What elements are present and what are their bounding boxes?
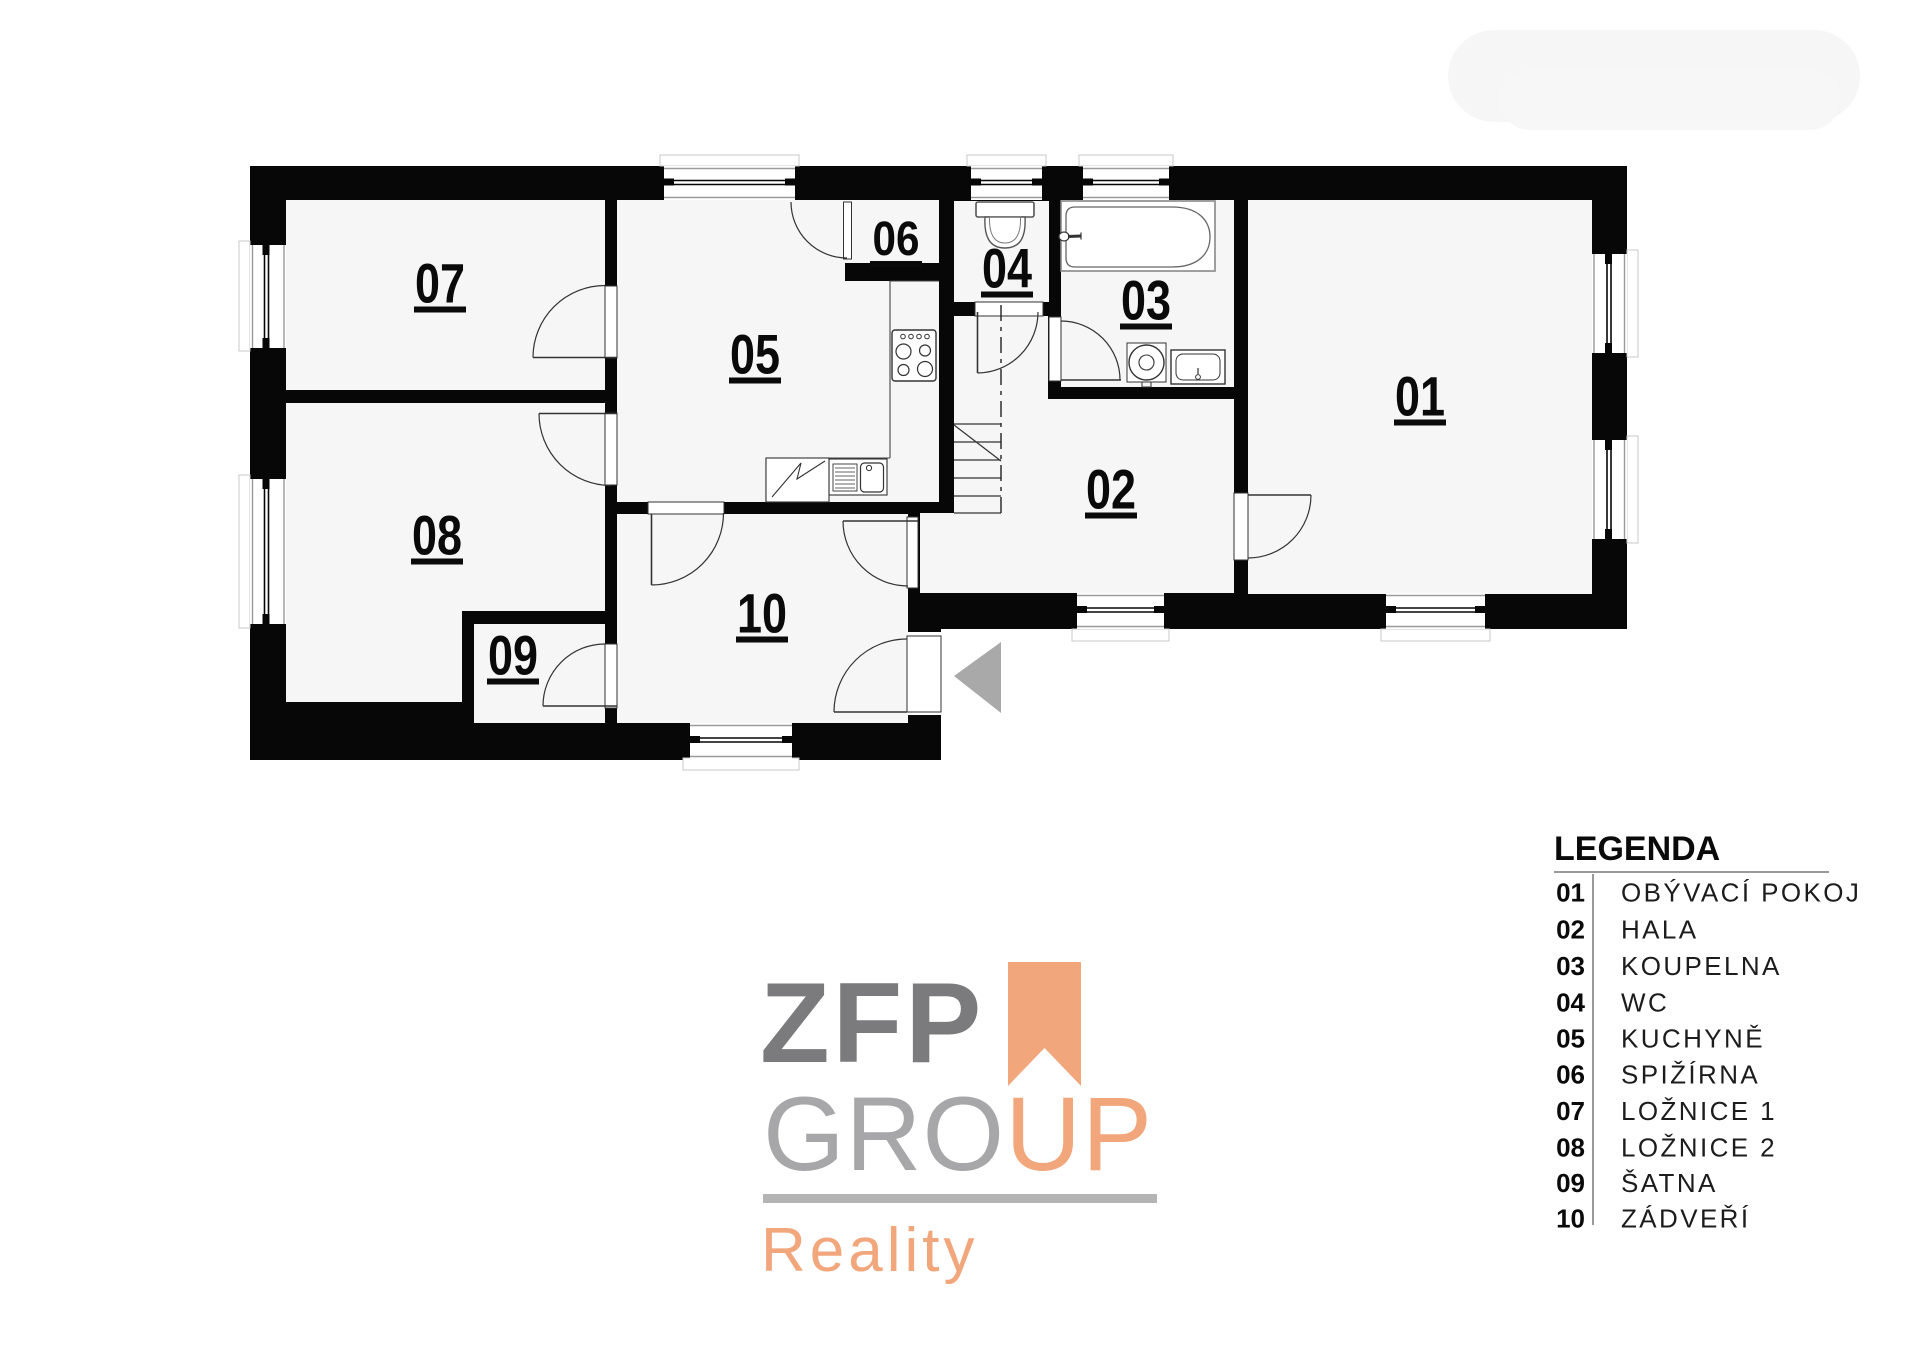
svg-text:07: 07 bbox=[415, 252, 465, 315]
svg-text:OBÝVACÍ POKOJ: OBÝVACÍ POKOJ bbox=[1621, 878, 1861, 908]
svg-text:KOUPELNA: KOUPELNA bbox=[1621, 951, 1782, 981]
svg-text:05: 05 bbox=[1556, 1024, 1585, 1054]
svg-text:LOŽNICE 2: LOŽNICE 2 bbox=[1621, 1133, 1777, 1163]
svg-text:Reality: Reality bbox=[761, 1216, 979, 1285]
svg-text:ZÁDVEŘÍ: ZÁDVEŘÍ bbox=[1621, 1204, 1750, 1234]
svg-text:06: 06 bbox=[1556, 1060, 1585, 1090]
svg-text:04: 04 bbox=[982, 237, 1032, 300]
svg-text:09: 09 bbox=[488, 624, 538, 687]
svg-text:02: 02 bbox=[1556, 915, 1585, 945]
svg-text:WC: WC bbox=[1621, 988, 1669, 1018]
svg-text:ZFP: ZFP bbox=[760, 960, 984, 1087]
svg-text:LEGENDA: LEGENDA bbox=[1554, 830, 1720, 868]
svg-text:LOŽNICE 1: LOŽNICE 1 bbox=[1621, 1096, 1777, 1126]
svg-text:10: 10 bbox=[1556, 1204, 1585, 1234]
svg-text:ŠATNA: ŠATNA bbox=[1621, 1168, 1718, 1198]
svg-text:GROUP: GROUP bbox=[763, 1076, 1153, 1193]
svg-text:SPIŽÍRNA: SPIŽÍRNA bbox=[1621, 1060, 1760, 1090]
svg-text:02: 02 bbox=[1086, 458, 1136, 521]
svg-text:05: 05 bbox=[730, 323, 780, 386]
svg-text:01: 01 bbox=[1395, 365, 1445, 428]
svg-text:08: 08 bbox=[1556, 1133, 1585, 1163]
svg-text:04: 04 bbox=[1556, 988, 1585, 1018]
svg-text:01: 01 bbox=[1556, 878, 1585, 908]
svg-text:07: 07 bbox=[1556, 1096, 1585, 1126]
svg-text:10: 10 bbox=[737, 582, 787, 645]
svg-text:HALA: HALA bbox=[1621, 915, 1699, 945]
svg-text:03: 03 bbox=[1556, 951, 1585, 981]
svg-text:06: 06 bbox=[873, 213, 920, 266]
svg-text:03: 03 bbox=[1121, 269, 1171, 332]
svg-text:08: 08 bbox=[412, 504, 462, 567]
svg-text:KUCHYNĚ: KUCHYNĚ bbox=[1621, 1024, 1765, 1054]
svg-text:09: 09 bbox=[1556, 1168, 1585, 1198]
